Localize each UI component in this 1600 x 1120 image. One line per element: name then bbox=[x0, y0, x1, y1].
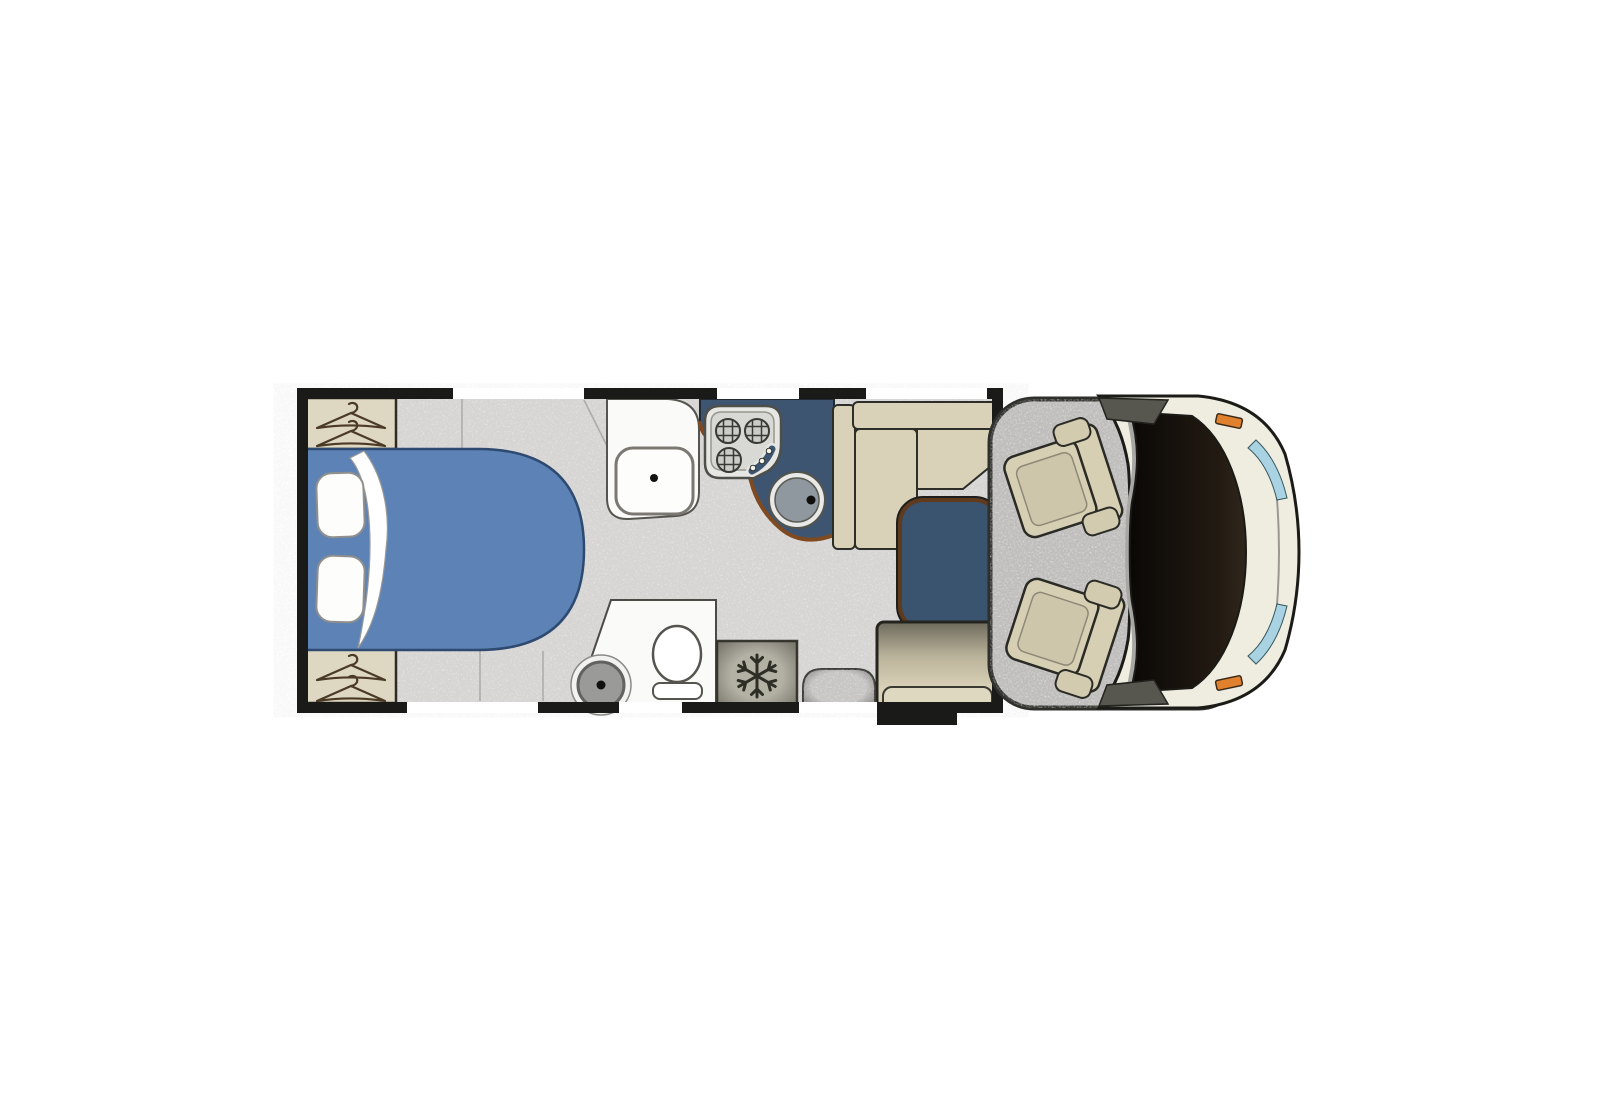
washroom-basin-unit bbox=[607, 399, 699, 519]
window-top-2 bbox=[717, 388, 799, 399]
drain-dot-icon bbox=[597, 681, 606, 690]
window-bottom-2 bbox=[619, 702, 682, 713]
pillow bbox=[316, 472, 365, 538]
window-bottom-1 bbox=[407, 702, 538, 713]
dinette-table bbox=[897, 497, 1001, 632]
floorplan-canvas bbox=[0, 0, 1600, 1120]
motorhome-floorplan bbox=[0, 0, 1600, 1120]
bench-backrest-top bbox=[853, 402, 998, 429]
hob bbox=[705, 406, 781, 478]
toilet bbox=[653, 626, 702, 699]
bench-backrest-left bbox=[833, 405, 855, 549]
fridge bbox=[717, 641, 797, 711]
vehicle-front bbox=[1099, 396, 1299, 708]
travel-seat bbox=[877, 622, 998, 711]
window-top-3 bbox=[866, 388, 987, 399]
drain-dot-icon bbox=[650, 474, 658, 482]
entry-door-opening bbox=[799, 702, 877, 713]
wardrobe-top bbox=[306, 398, 396, 449]
pillow bbox=[316, 555, 365, 623]
exterior-step bbox=[877, 713, 957, 725]
window-top-1 bbox=[453, 388, 584, 399]
drain-dot-icon bbox=[807, 496, 816, 505]
cab bbox=[990, 396, 1299, 708]
kitchen-sink bbox=[769, 472, 825, 528]
wardrobe-bottom bbox=[306, 648, 396, 703]
